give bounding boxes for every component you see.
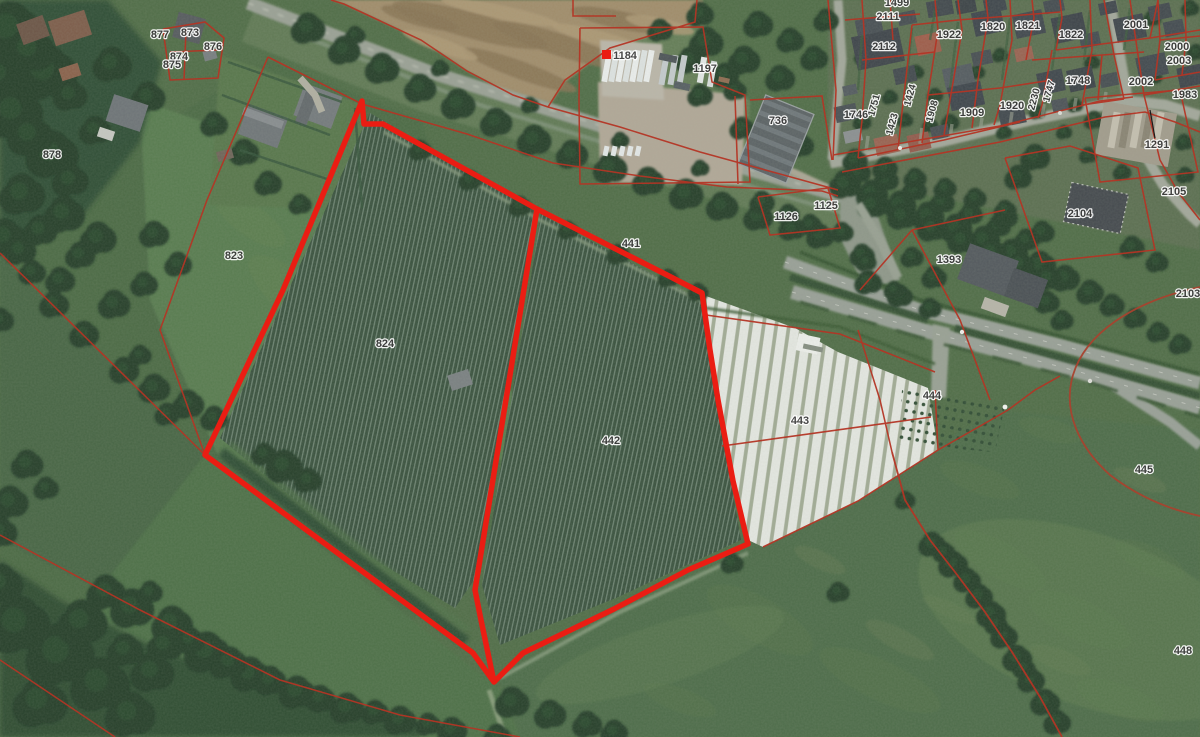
svg-text:873: 873 — [181, 27, 199, 39]
svg-text:2112: 2112 — [872, 41, 896, 53]
svg-text:1922: 1922 — [937, 29, 961, 41]
svg-text:878: 878 — [43, 149, 61, 161]
svg-text:2104: 2104 — [1068, 208, 1093, 220]
svg-text:1197: 1197 — [693, 63, 717, 75]
svg-text:876: 876 — [204, 41, 222, 53]
svg-text:877: 877 — [151, 29, 169, 41]
svg-text:2000: 2000 — [1165, 41, 1189, 53]
svg-text:1909: 1909 — [960, 107, 984, 119]
svg-text:1746: 1746 — [844, 109, 868, 121]
svg-text:445: 445 — [1135, 464, 1153, 476]
svg-text:2105: 2105 — [1162, 186, 1186, 198]
svg-text:824: 824 — [376, 338, 395, 350]
svg-text:2103: 2103 — [1176, 288, 1200, 300]
svg-text:444: 444 — [923, 390, 942, 402]
svg-text:1822: 1822 — [1059, 29, 1083, 41]
svg-text:1291: 1291 — [1145, 139, 1169, 151]
svg-text:736: 736 — [769, 115, 787, 127]
svg-text:1393: 1393 — [937, 254, 961, 266]
svg-text:448: 448 — [1174, 645, 1192, 657]
svg-text:1125: 1125 — [814, 200, 838, 212]
svg-text:1920: 1920 — [1000, 100, 1024, 112]
svg-text:443: 443 — [791, 415, 809, 427]
svg-text:2001: 2001 — [1124, 19, 1148, 31]
svg-text:1184: 1184 — [613, 50, 638, 62]
svg-text:441: 441 — [622, 238, 640, 250]
svg-text:1126: 1126 — [774, 211, 798, 223]
svg-text:2003: 2003 — [1167, 55, 1191, 67]
svg-text:823: 823 — [225, 250, 243, 262]
svg-text:2002: 2002 — [1129, 76, 1153, 88]
svg-text:1748: 1748 — [1066, 75, 1090, 87]
svg-text:1821: 1821 — [1016, 20, 1040, 32]
svg-text:1820: 1820 — [981, 21, 1005, 33]
svg-text:2111: 2111 — [876, 11, 899, 23]
svg-text:1983: 1983 — [1173, 89, 1197, 101]
svg-text:442: 442 — [602, 435, 620, 447]
svg-text:875: 875 — [163, 59, 181, 71]
svg-text:1499: 1499 — [885, 0, 909, 9]
